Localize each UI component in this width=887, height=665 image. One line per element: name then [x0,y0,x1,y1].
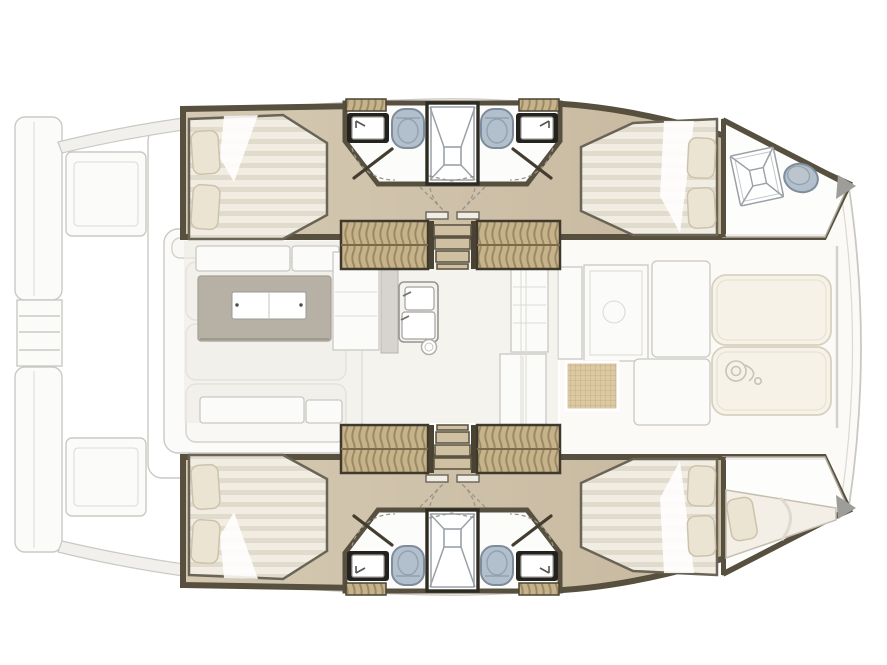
appliance-column [511,269,548,352]
bench-seat [196,246,290,271]
catamaran-floorplan: Catamaran yacht floor plan — top view [0,0,887,665]
transom-steps [17,300,62,366]
swim-platform [15,367,62,552]
round-basin [422,340,437,355]
floorplan-canvas: Catamaran yacht floor plan — top view [0,0,887,665]
lounge-panel [652,261,710,357]
stern-locker [66,152,146,236]
deck-hatch-icon [730,147,784,206]
fwd-door-panel [584,265,648,361]
rattan-table [566,362,618,410]
stern-locker [66,438,146,516]
sun-pad [712,347,831,415]
lounge-panel [634,359,710,425]
mast-post [381,269,398,353]
salon-fwd-door [558,267,582,359]
galley-double-sink [399,282,438,342]
dining-table [198,276,331,341]
bench-seat [200,397,304,423]
bench-seat [292,246,339,271]
bench-seat [306,400,342,423]
sun-pad [712,275,831,345]
swim-platform [15,117,62,300]
galley-cabinet [500,354,546,426]
